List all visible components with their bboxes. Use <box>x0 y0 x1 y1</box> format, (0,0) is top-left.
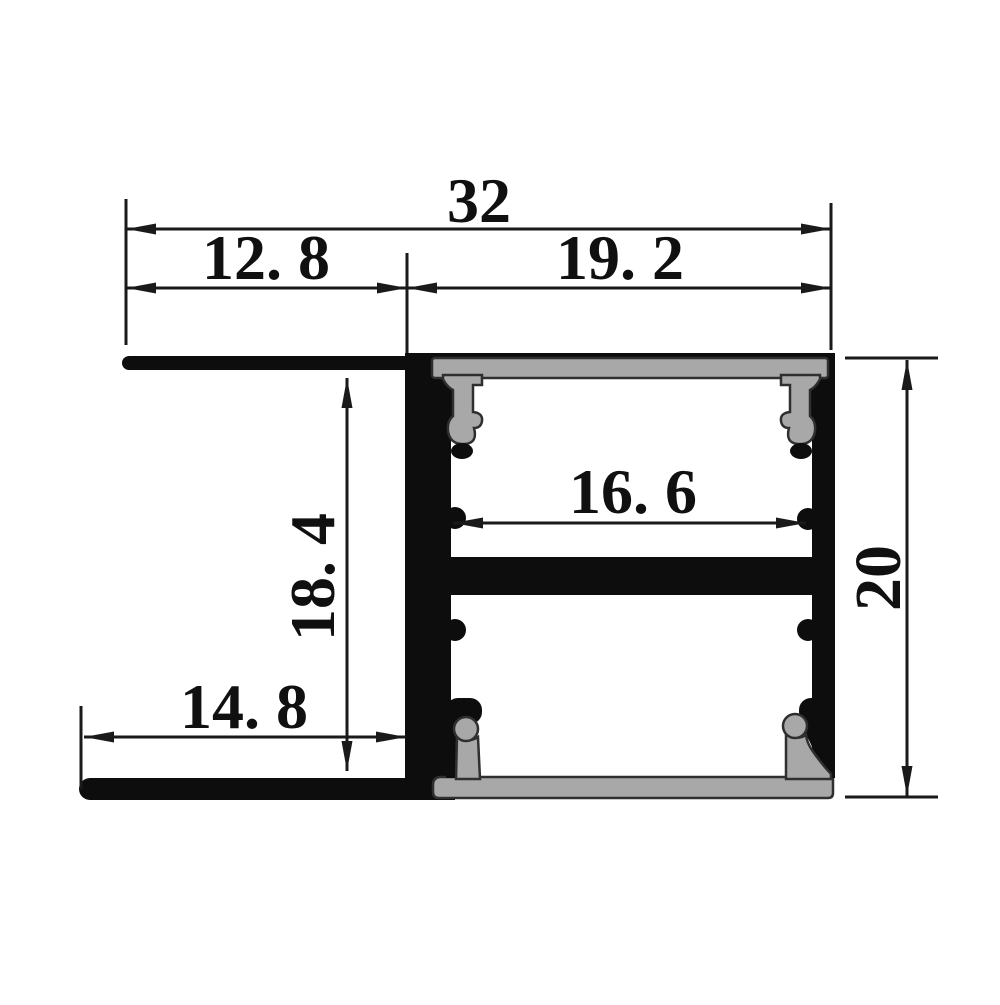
svg-text:12. 8: 12. 8 <box>202 222 330 293</box>
svg-text:32: 32 <box>447 165 511 236</box>
svg-text:16. 6: 16. 6 <box>569 456 697 527</box>
svg-text:18. 4: 18. 4 <box>277 513 348 641</box>
svg-text:19. 2: 19. 2 <box>556 222 684 293</box>
svg-text:14. 8: 14. 8 <box>180 671 308 742</box>
svg-text:20: 20 <box>842 545 915 611</box>
